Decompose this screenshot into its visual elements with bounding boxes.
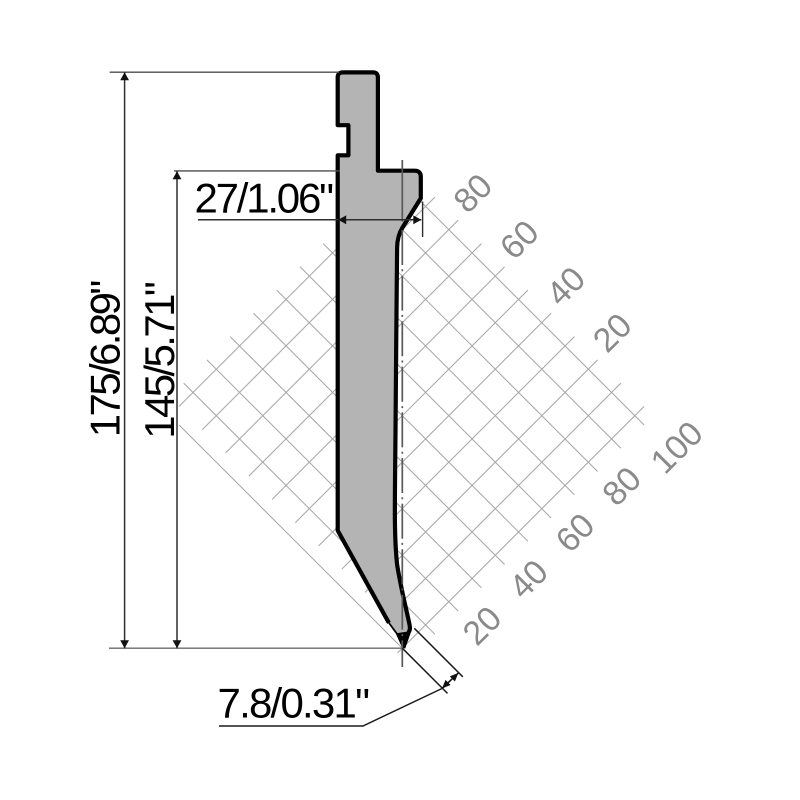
svg-text:7.8/0.31": 7.8/0.31"	[218, 679, 371, 726]
svg-text:27/1.06": 27/1.06"	[195, 175, 335, 222]
svg-text:175/6.89": 175/6.89"	[82, 280, 129, 438]
svg-text:145/5.71": 145/5.71"	[136, 281, 183, 439]
